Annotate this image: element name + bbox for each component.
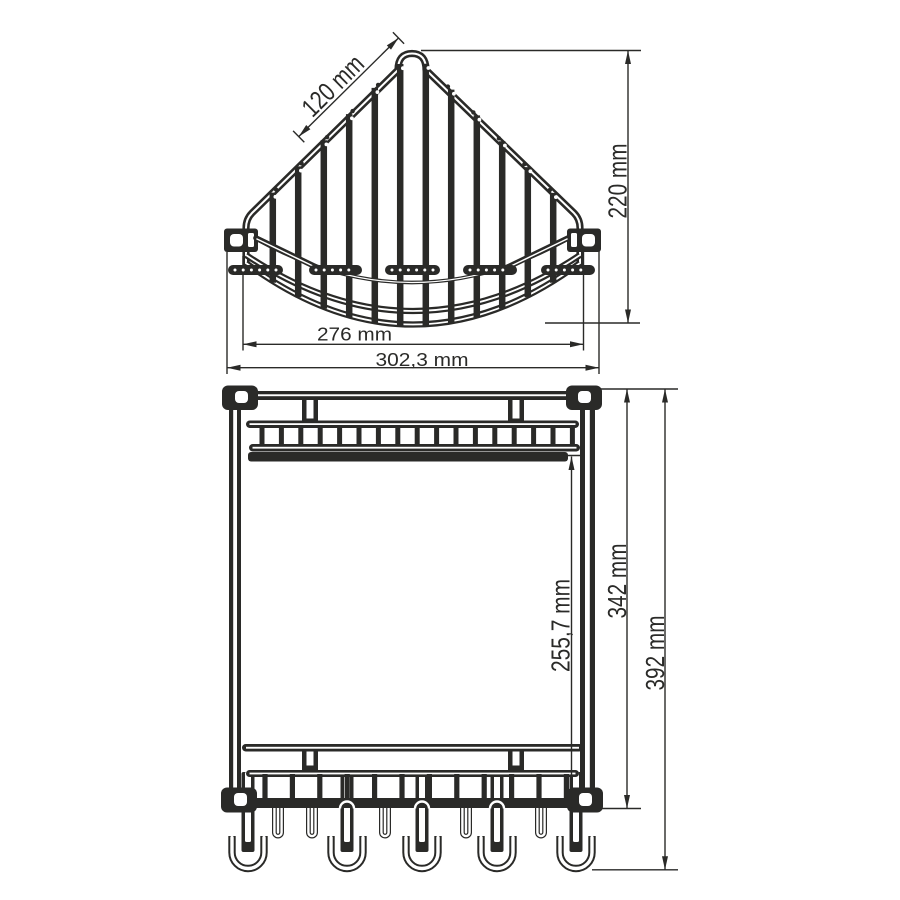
svg-text:342 mm: 342 mm xyxy=(602,544,632,619)
svg-text:276 mm: 276 mm xyxy=(317,323,392,344)
svg-text:220 mm: 220 mm xyxy=(603,144,633,219)
svg-text:392 mm: 392 mm xyxy=(640,616,670,691)
svg-text:255,7 mm: 255,7 mm xyxy=(546,579,576,672)
svg-text:302,3 mm: 302,3 mm xyxy=(376,349,469,370)
